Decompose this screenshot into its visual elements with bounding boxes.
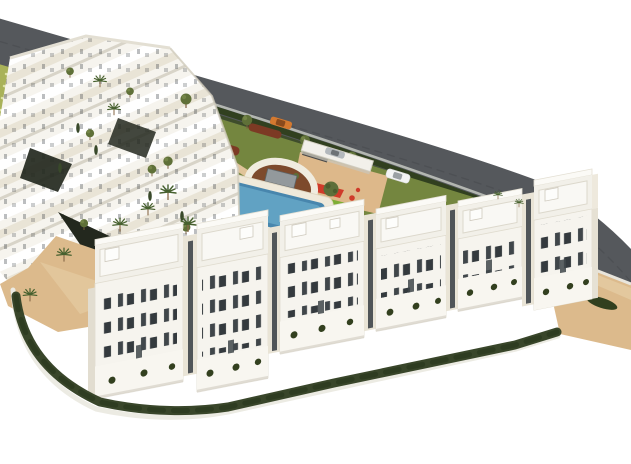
entrance-door bbox=[136, 344, 142, 358]
render-canvas bbox=[0, 0, 631, 464]
olive-tree bbox=[324, 182, 339, 197]
entrance-door bbox=[486, 259, 492, 273]
cypress-tree bbox=[58, 163, 62, 173]
cypress-tree bbox=[180, 211, 184, 221]
architectural-render bbox=[0, 0, 631, 464]
entrance-door bbox=[318, 300, 324, 314]
cypress-tree bbox=[94, 145, 98, 155]
entrance-door bbox=[560, 259, 566, 273]
cypress-tree bbox=[76, 123, 80, 133]
apartment-block-4 bbox=[376, 195, 446, 332]
entrance-door bbox=[228, 340, 234, 354]
cypress-tree bbox=[148, 191, 152, 201]
apartment-block-2 bbox=[197, 210, 268, 393]
entrance-door bbox=[408, 279, 414, 293]
apartment-block-5 bbox=[458, 189, 522, 312]
apartment-block-3 bbox=[280, 199, 364, 354]
apartment-block-1 bbox=[88, 222, 183, 400]
apartment-block-6 bbox=[534, 168, 598, 310]
